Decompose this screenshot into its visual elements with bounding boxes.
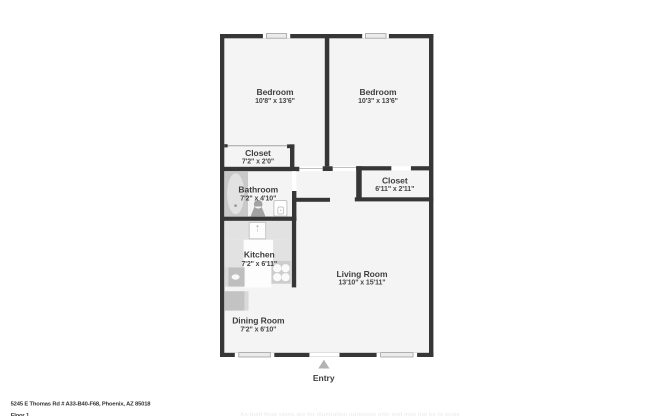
svg-text:Bathroom: Bathroom <box>238 185 278 195</box>
svg-text:13'10" x 15'11": 13'10" x 15'11" <box>338 280 385 287</box>
svg-text:6'11" x 2'11": 6'11" x 2'11" <box>375 186 414 193</box>
svg-text:Living Room: Living Room <box>337 269 388 279</box>
svg-text:7'2" x 6'11": 7'2" x 6'11" <box>241 261 277 268</box>
svg-text:Entry: Entry <box>313 373 335 383</box>
svg-text:Closet: Closet <box>382 175 408 185</box>
svg-text:Bedroom: Bedroom <box>360 87 397 97</box>
svg-text:Dining Room: Dining Room <box>232 316 285 326</box>
svg-text:5245 E Thomas Rd # A33-B40-F68: 5245 E Thomas Rd # A33-B40-F68, Phoenix,… <box>11 401 152 407</box>
svg-text:Closet: Closet <box>245 148 271 158</box>
svg-text:7'2" x 6'10": 7'2" x 6'10" <box>240 327 276 334</box>
svg-text:7'2" x 4'10": 7'2" x 4'10" <box>240 195 276 202</box>
svg-text:10'8" x 13'6": 10'8" x 13'6" <box>255 98 295 105</box>
svg-text:10'3" x 13'6": 10'3" x 13'6" <box>358 98 398 105</box>
svg-text:Kitchen: Kitchen <box>244 250 275 260</box>
svg-text:7'2" x 2'0": 7'2" x 2'0" <box>242 159 274 166</box>
svg-text:Bedroom: Bedroom <box>257 87 294 97</box>
svg-text:As-built floor plans are for i: As-built floor plans are for illustratio… <box>240 412 460 416</box>
